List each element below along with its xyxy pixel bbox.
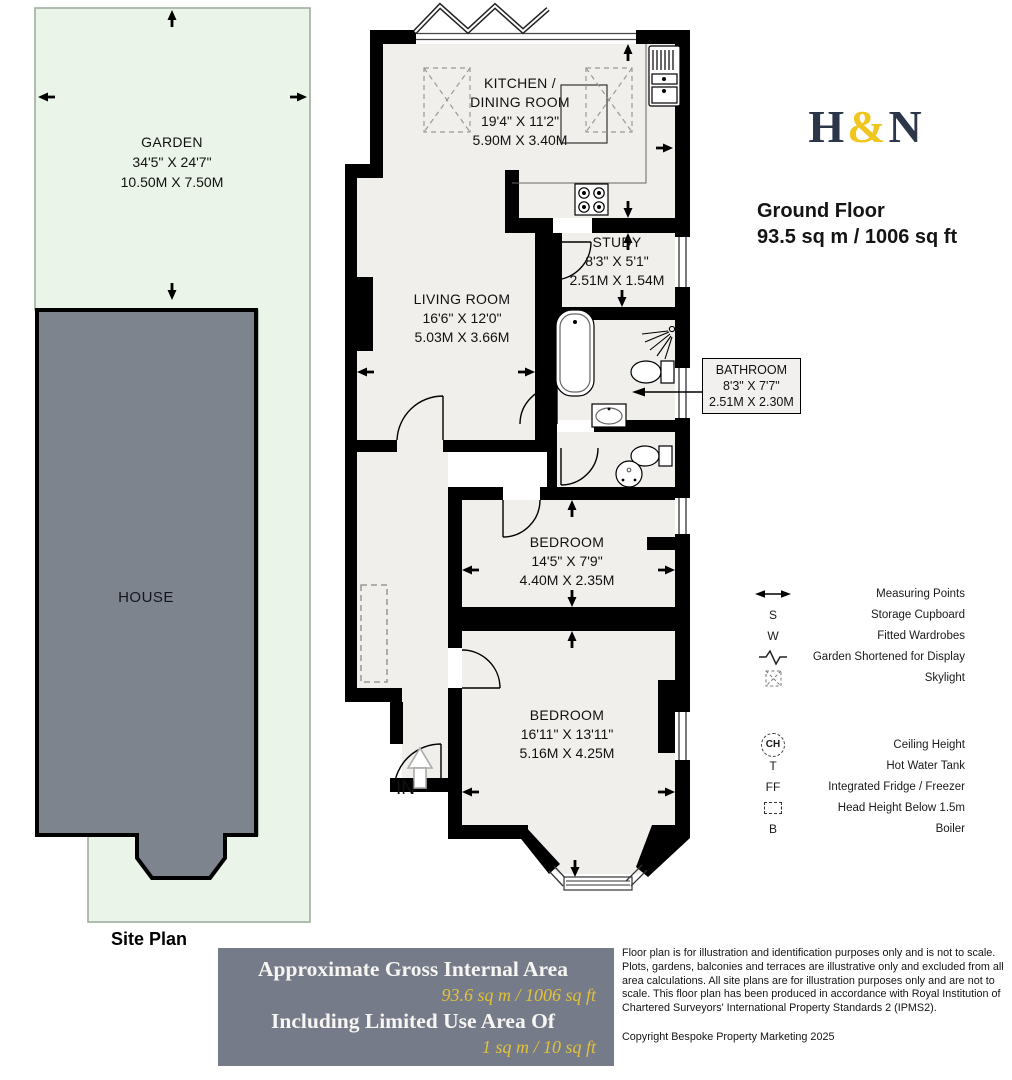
floor-fills xyxy=(357,42,678,874)
boiler-symbol: B xyxy=(753,822,793,836)
legend-group-2: CH Ceiling Height T Hot Water Tank FF In… xyxy=(753,734,965,840)
legend-row: S Storage Cupboard xyxy=(753,604,965,625)
hob-icon xyxy=(575,184,608,215)
limited-area-value: 1 sq m / 10 sq ft xyxy=(230,1035,596,1059)
agency-logo: H&N xyxy=(808,100,921,153)
zigzag-icon xyxy=(753,649,793,666)
entrance-label: IN xyxy=(396,778,415,800)
logo-n: N xyxy=(888,101,921,152)
garden-label: GARDEN 34'5" X 24'7" 10.50M X 7.50M xyxy=(121,132,224,192)
toilet-icon xyxy=(631,361,674,383)
legend-row: T Hot Water Tank xyxy=(753,755,965,776)
copyright-text: Copyright Bespoke Property Marketing 202… xyxy=(622,1031,834,1043)
legend-row: Skylight xyxy=(753,668,965,689)
bathroom-callout: BATHROOM 8'3" X 7'7" 2.51M X 2.30M xyxy=(702,358,801,414)
logo-ampersand: & xyxy=(847,101,885,152)
bathtub-icon xyxy=(556,310,594,396)
sink-icon xyxy=(649,46,680,106)
legend-row: Head Height Below 1.5m xyxy=(753,798,965,819)
house-label: HOUSE xyxy=(118,589,174,606)
study-label: STUDY 8'3" X 5'1" 2.51M X 1.54M xyxy=(570,233,665,290)
floor-title: Ground Floor xyxy=(757,198,957,224)
ceiling-height-icon: CH xyxy=(753,733,793,757)
gross-area-box: Approximate Gross Internal Area 93.6 sq … xyxy=(218,948,614,1066)
bedroom1-label: BEDROOM 14'5" X 7'9" 4.40M X 2.35M xyxy=(520,533,615,590)
limited-area-title: Including Limited Use Area Of xyxy=(230,1007,596,1035)
disclaimer-text: Floor plan is for illustration and ident… xyxy=(622,947,1012,1016)
round-basin-icon xyxy=(616,461,642,487)
hot-water-tank-symbol: T xyxy=(753,759,793,773)
chimney-breast xyxy=(357,277,373,351)
floor-area: 93.5 sq m / 1006 sq ft xyxy=(757,224,957,250)
head-height-icon xyxy=(753,802,793,814)
wardrobe-symbol: W xyxy=(753,629,793,643)
legend-row: Measuring Points xyxy=(753,583,965,604)
gross-area-title: Approximate Gross Internal Area xyxy=(230,955,596,983)
garden-shortened-zigzag xyxy=(415,6,548,32)
living-room-label: LIVING ROOM 16'6" X 12'0" 5.03M X 3.66M xyxy=(414,290,511,347)
storage-symbol: S xyxy=(753,608,793,622)
legend-row: Garden Shortened for Display xyxy=(753,647,965,668)
floorplan-page: GARDEN 34'5" X 24'7" 10.50M X 7.50M HOUS… xyxy=(0,0,1012,1080)
legend-row: B Boiler xyxy=(753,819,965,840)
bedroom2-label: BEDROOM 16'11" X 13'11" 5.16M X 4.25M xyxy=(520,706,615,763)
fridge-freezer-symbol: FF xyxy=(753,780,793,794)
site-plan-caption: Site Plan xyxy=(111,929,187,950)
chimney-breast-2 xyxy=(658,680,675,753)
basin-icon xyxy=(592,404,626,427)
logo-h: H xyxy=(808,101,844,152)
gross-area-value: 93.6 sq m / 1006 sq ft xyxy=(230,983,596,1007)
legend-row: FF Integrated Fridge / Freezer xyxy=(753,776,965,797)
kitchen-label: KITCHEN / DINING ROOM 19'4" X 11'2" 5.90… xyxy=(470,74,570,150)
legend-group-1: Measuring Points S Storage Cupboard W Fi… xyxy=(753,583,965,689)
toilet-icon xyxy=(631,446,672,466)
legend-row: CH Ceiling Height xyxy=(753,734,965,755)
floor-title-block: Ground Floor 93.5 sq m / 1006 sq ft xyxy=(757,198,957,250)
skylight-icon xyxy=(753,670,793,687)
measuring-points-icon xyxy=(753,589,793,599)
legend-row: W Fitted Wardrobes xyxy=(753,625,965,646)
